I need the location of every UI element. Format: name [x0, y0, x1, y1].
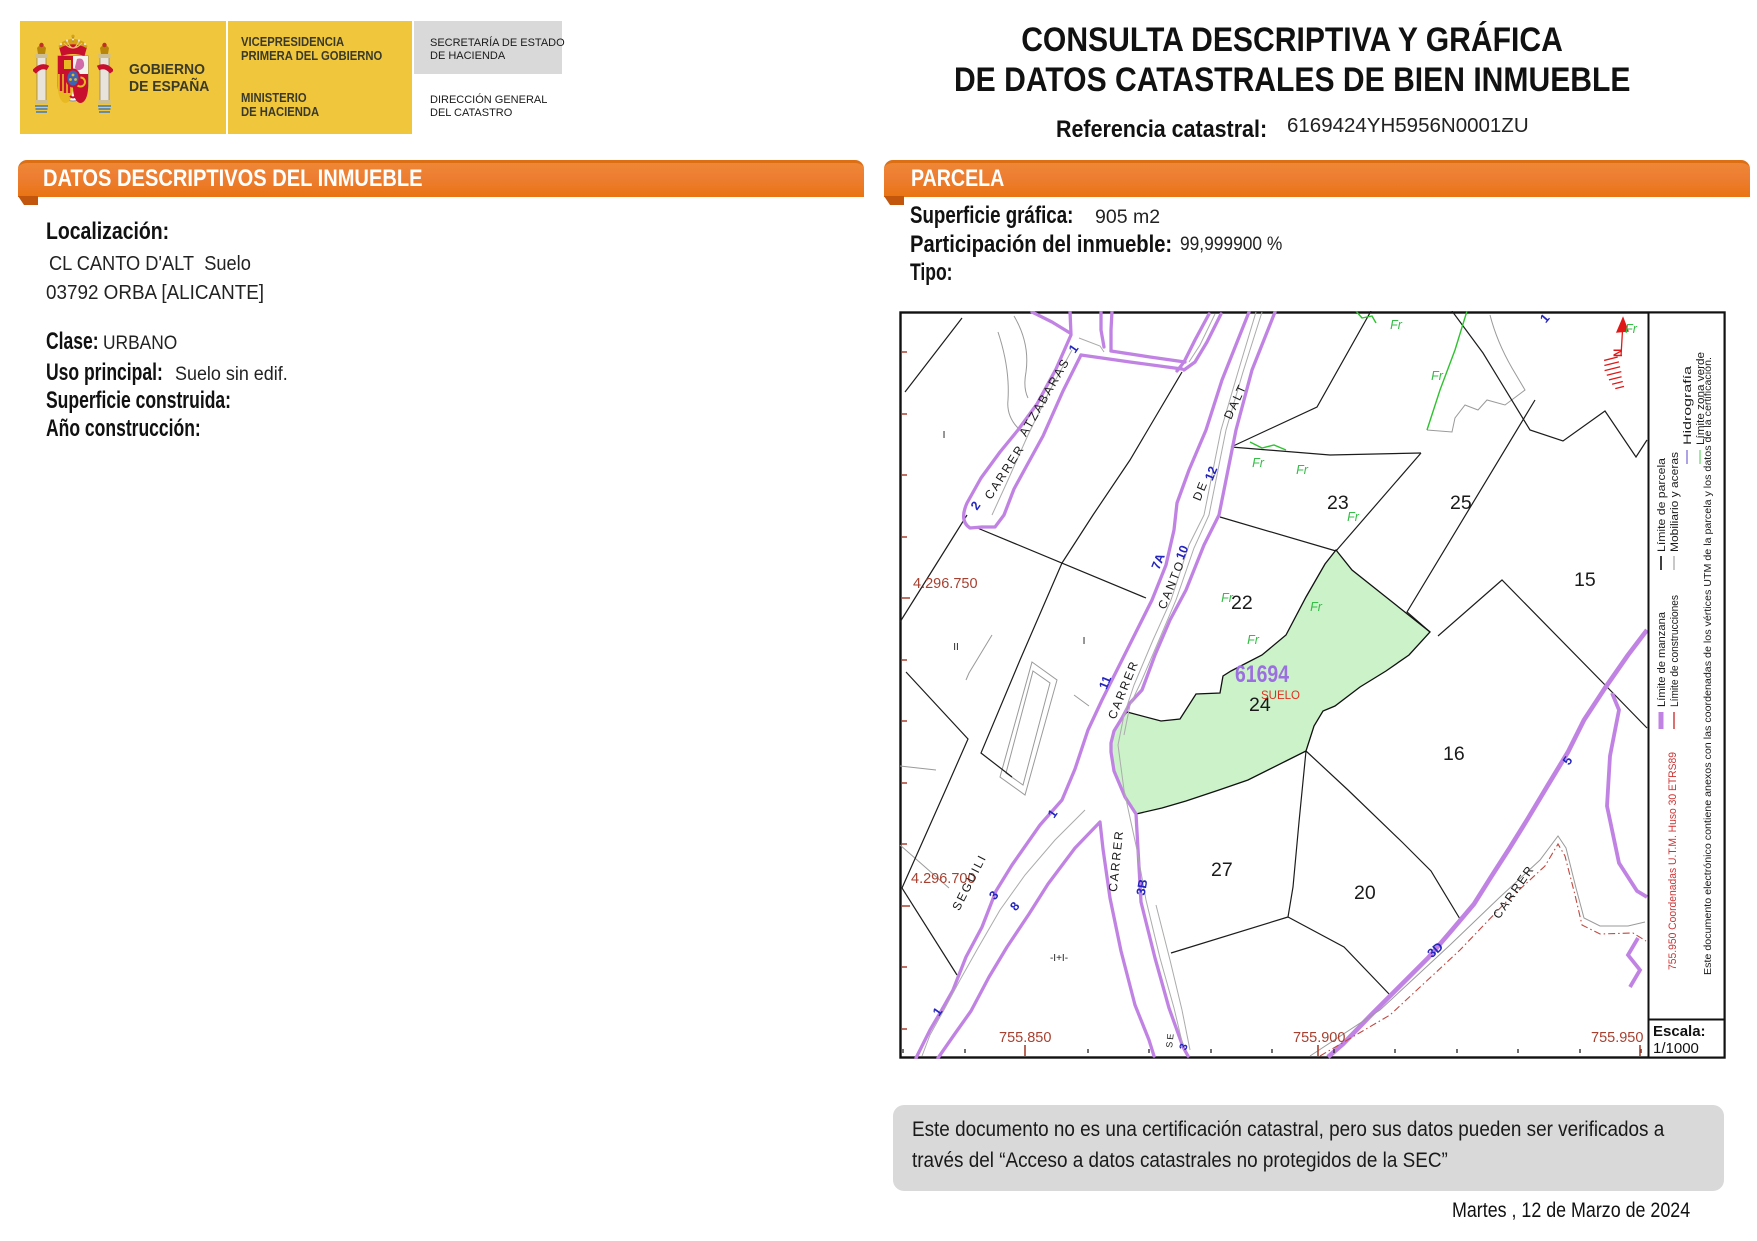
svg-text:755.850: 755.850	[999, 1030, 1051, 1046]
svg-text:25: 25	[1450, 492, 1472, 514]
svg-text:15: 15	[1574, 569, 1596, 591]
svg-text:SUELO: SUELO	[1261, 690, 1300, 702]
svg-text:II: II	[953, 642, 959, 653]
svg-text:1/1000: 1/1000	[1653, 1040, 1699, 1057]
svg-text:61694: 61694	[1235, 661, 1290, 688]
svg-text:755.900: 755.900	[1293, 1030, 1345, 1046]
svg-text:Fr: Fr	[1431, 369, 1444, 383]
svg-text:Fr: Fr	[1296, 463, 1309, 477]
svg-text:I: I	[943, 430, 946, 441]
svg-text:N: N	[1613, 349, 1625, 357]
svg-text:Fr: Fr	[1390, 318, 1403, 332]
svg-text:16: 16	[1443, 743, 1465, 765]
svg-text:I: I	[1083, 636, 1086, 647]
svg-text:Hidrografía: Hidrografía	[1682, 365, 1694, 445]
svg-text:Límite de parcela: Límite de parcela	[1656, 457, 1668, 552]
svg-text:Límite de manzana: Límite de manzana	[1656, 611, 1668, 707]
svg-text:Fr: Fr	[1625, 322, 1638, 336]
svg-text:Fr: Fr	[1252, 456, 1265, 470]
svg-text:22: 22	[1231, 592, 1253, 614]
svg-text:-I+I-: -I+I-	[1050, 953, 1068, 964]
svg-text:Límite de construcciones: Límite de construcciones	[1669, 595, 1681, 707]
svg-text:755.950 Coordenadas U.T.M. Hus: 755.950 Coordenadas U.T.M. Huso 30 ETRS8…	[1667, 752, 1679, 970]
svg-text:Fr: Fr	[1247, 633, 1260, 647]
svg-text:4.296.750: 4.296.750	[913, 576, 978, 592]
svg-text:Mobiliario y aceras: Mobiliario y aceras	[1669, 451, 1681, 552]
svg-text:20: 20	[1354, 882, 1376, 904]
svg-text:23: 23	[1327, 492, 1349, 514]
svg-text:SE: SE	[1164, 1031, 1176, 1048]
svg-text:Fr: Fr	[1221, 591, 1234, 605]
svg-text:Este documento electrónico con: Este documento electrónico contiene anex…	[1702, 357, 1714, 975]
svg-text:Fr: Fr	[1347, 510, 1360, 524]
svg-text:Fr: Fr	[1310, 600, 1323, 614]
svg-text:Escala:: Escala:	[1653, 1023, 1706, 1040]
svg-text:755.950: 755.950	[1591, 1030, 1643, 1046]
svg-text:27: 27	[1211, 859, 1233, 881]
svg-text:3B: 3B	[1134, 878, 1151, 896]
